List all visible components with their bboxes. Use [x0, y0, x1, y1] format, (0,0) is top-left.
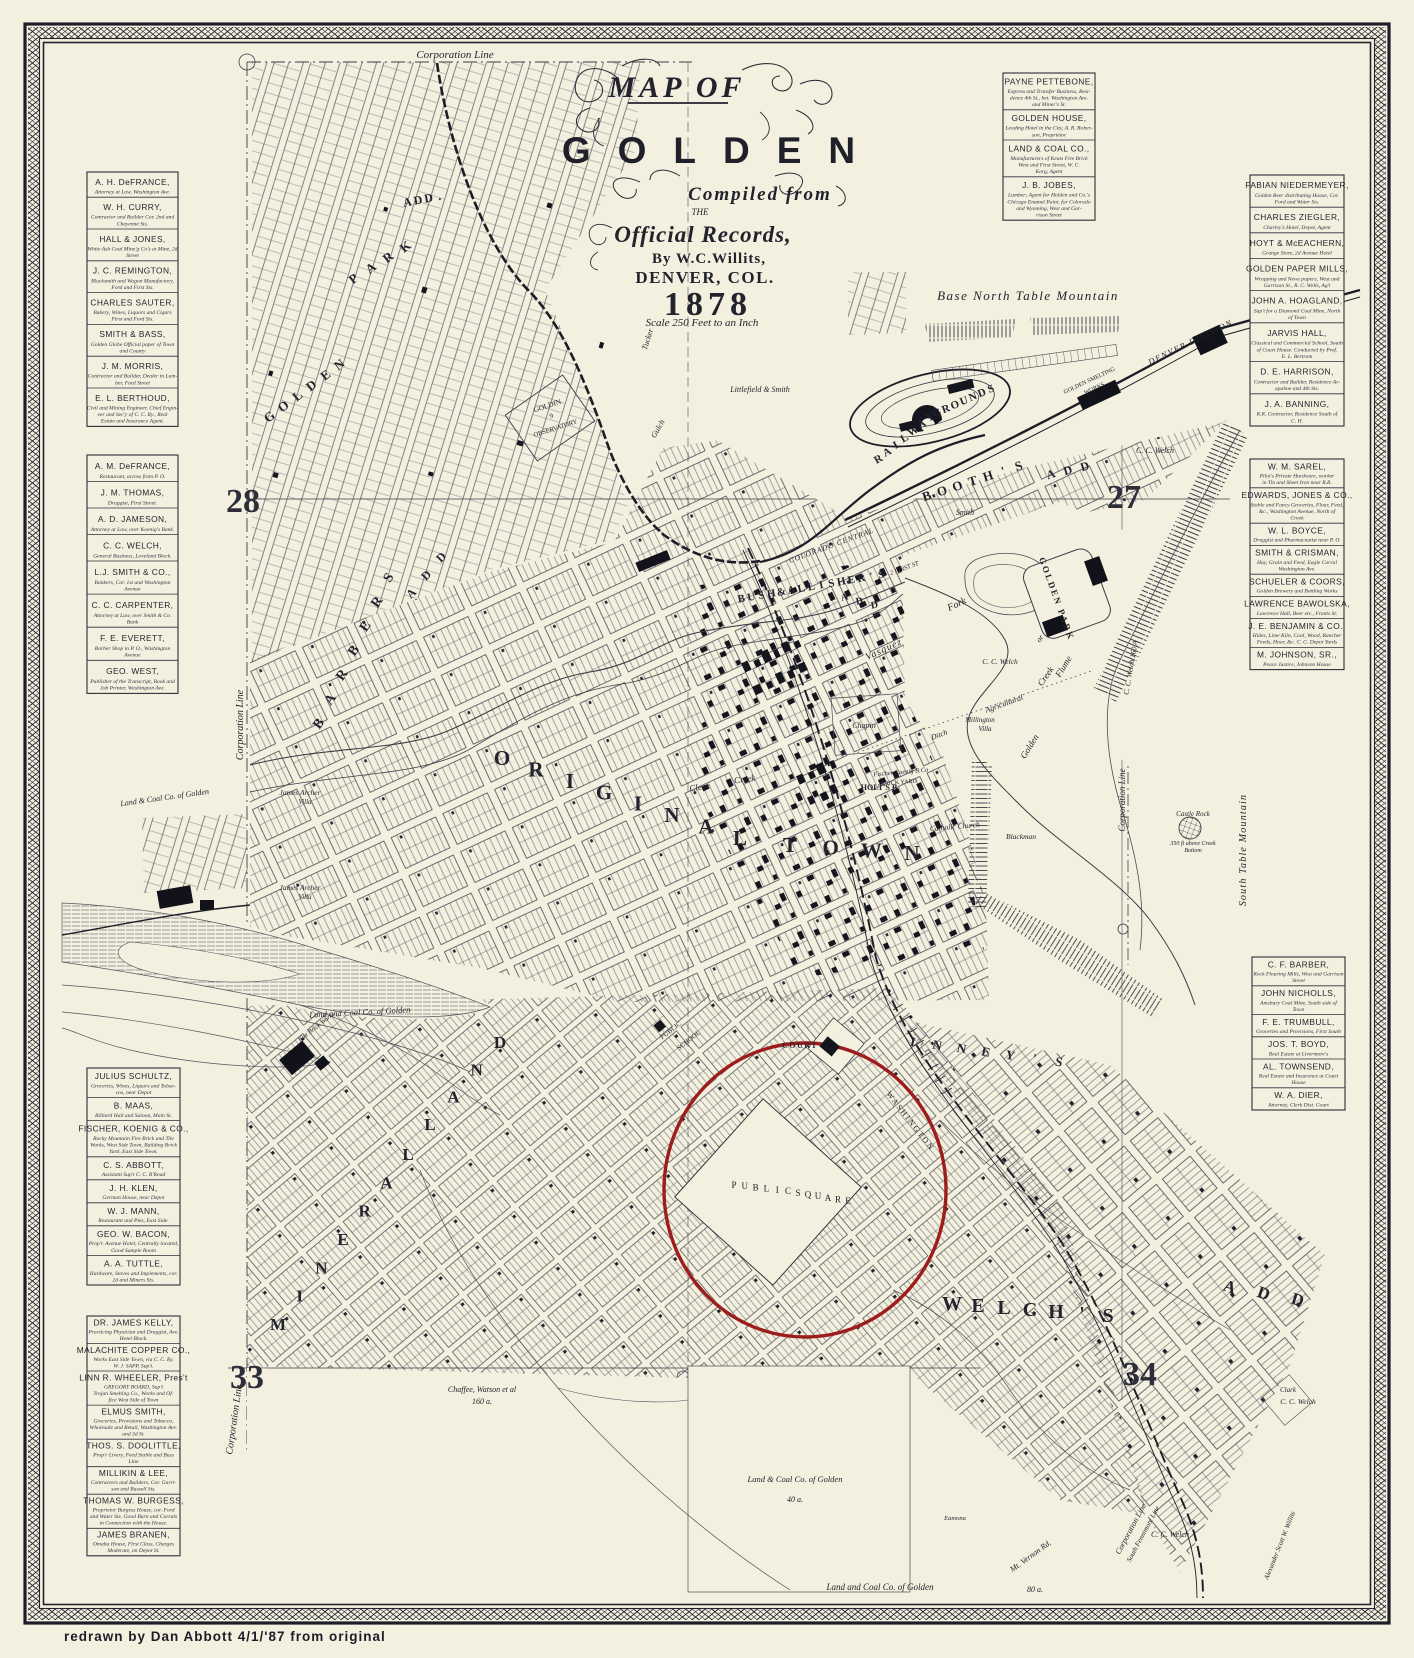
svg-text:Compiled from: Compiled from — [688, 184, 832, 205]
svg-text:L: L — [733, 826, 747, 850]
svg-text:Works, West Side Town, Buildin: Works, West Side Town, Building Brick — [90, 1143, 177, 1149]
svg-text:I: I — [634, 792, 642, 816]
svg-text:Hotel Block.: Hotel Block. — [119, 1336, 148, 1342]
svg-text:Avenue: Avenue — [123, 653, 141, 659]
svg-text:27: 27 — [1107, 479, 1141, 516]
svg-text:Real Estate and Insurance at C: Real Estate and Insurance at Court — [1258, 1074, 1339, 1080]
svg-text:Castle Rock: Castle Rock — [1176, 810, 1211, 818]
svg-text:Publisher of the Transcript, B: Publisher of the Transcript, Book and — [89, 678, 175, 685]
svg-text:Practicing Physician and Drugg: Practicing Physician and Druggist, Ave. — [87, 1329, 178, 1335]
svg-text:Manufacturers of Keats Fire Br: Manufacturers of Keats Fire Brick — [1009, 155, 1088, 162]
svg-text:Sup't for a Diamond Coal Mine,: Sup't for a Diamond Coal Mine, North — [1254, 308, 1341, 315]
svg-text:Prop'r. Avenue Hotel, Centrall: Prop'r. Avenue Hotel, Centrally located, — [88, 1241, 179, 1247]
svg-text:W. J. SAPP, Sup't.: W. J. SAPP, Sup't. — [114, 1363, 154, 1369]
svg-text:Good Sample Room: Good Sample Room — [111, 1248, 156, 1254]
svg-text:M: M — [270, 1315, 286, 1334]
svg-text:James Archer: James Archer — [279, 883, 320, 892]
svg-text:Proprietor Burgess House, cor.: Proprietor Burgess House, cor. Ford — [91, 1507, 174, 1513]
svg-text:Trojan Smelting Co., Works and: Trojan Smelting Co., Works and Of- — [93, 1390, 173, 1397]
svg-text:C. C. Welch: C. C. Welch — [982, 657, 1018, 666]
svg-text:West and First Street, W. C.: West and First Street, W. C. — [1018, 163, 1080, 169]
svg-text:L.J. SMITH & CO.,: L.J. SMITH & CO., — [94, 567, 170, 577]
svg-text:J. M. MORRIS,: J. M. MORRIS, — [102, 361, 164, 371]
svg-text:ELMUS SMITH,: ELMUS SMITH, — [101, 1406, 165, 1416]
svg-text:F. E. EVERETT,: F. E. EVERETT, — [100, 633, 165, 643]
svg-text:F. E. TRUMBULL,: F. E. TRUMBULL, — [1262, 1017, 1334, 1027]
svg-text:Villa: Villa — [298, 893, 312, 901]
svg-text:C: C — [1023, 1299, 1037, 1321]
svg-text:C: C — [785, 1186, 791, 1196]
svg-text:House: House — [1290, 1080, 1306, 1086]
svg-text:350 ft above Creek: 350 ft above Creek — [1169, 840, 1216, 847]
svg-text:son and Russell Sts.: son and Russell Sts. — [111, 1487, 155, 1493]
svg-text:Prop'r Livery, Feed Stable and: Prop'r Livery, Feed Stable and Buss — [92, 1452, 174, 1458]
svg-text:James Archer: James Archer — [279, 788, 320, 797]
svg-text:GEO. W. BACON,: GEO. W. BACON, — [97, 1229, 170, 1239]
svg-text:Golden Brewery and Bottling Wo: Golden Brewery and Bottling Works — [1257, 589, 1338, 595]
svg-text:Chicago Enamel Paint, for Colo: Chicago Enamel Paint, for Colorado — [1007, 198, 1090, 205]
svg-text:Korg, Agent: Korg, Agent — [1034, 169, 1062, 175]
svg-text:A. D. JAMESON,: A. D. JAMESON, — [98, 514, 167, 524]
svg-text:E. L. BERTHOUD,: E. L. BERTHOUD, — [95, 393, 170, 403]
svg-text:W. M. SAREL,: W. M. SAREL, — [1268, 461, 1326, 471]
svg-text:GOLDEN PAPER MILLS,: GOLDEN PAPER MILLS, — [1246, 263, 1348, 273]
svg-text:Attorney, Clerk Dist. Court: Attorney, Clerk Dist. Court — [1267, 1102, 1329, 1108]
svg-text:T: T — [783, 833, 797, 857]
svg-text:Rock Flouring Mills, West and: Rock Flouring Mills, West and Garrison — [1252, 972, 1343, 978]
svg-text:Corporation Line: Corporation Line — [235, 689, 246, 760]
svg-text:R.R. Contractor, Residence Sou: R.R. Contractor, Residence South of — [1256, 411, 1339, 418]
svg-text:Garrison St., R. C. Wells, Ag': Garrison St., R. C. Wells, Ag't — [1264, 283, 1331, 289]
svg-text:Attorney at Law, over Koenig's: Attorney at Law, over Koenig's Bank. — [90, 527, 175, 533]
svg-text:JOHN NICHOLLS,: JOHN NICHOLLS, — [1261, 988, 1336, 998]
svg-text:U: U — [742, 1181, 749, 1191]
svg-text:E: E — [971, 1295, 984, 1317]
svg-text:cos, near Depot: cos, near Depot — [116, 1090, 152, 1096]
svg-text:Assistant Sup't C. C. R'Road: Assistant Sup't C. C. R'Road — [101, 1172, 166, 1178]
svg-text:I: I — [776, 1185, 779, 1195]
svg-text:R: R — [528, 757, 544, 781]
svg-text:Stable and Fancy Groceries, Fl: Stable and Fancy Groceries, Flour, Feed, — [1251, 502, 1345, 508]
svg-text:in Tin and Sheet Iron near R.R: in Tin and Sheet Iron near R.R. — [1262, 480, 1332, 486]
svg-text:W: W — [861, 838, 882, 862]
svg-text:GEO. WEST,: GEO. WEST, — [106, 666, 159, 676]
svg-text:South Table Mountain: South Table Mountain — [1238, 794, 1249, 907]
svg-text:Peace Justice, Johnson House: Peace Justice, Johnson House — [1262, 662, 1331, 668]
svg-text:Q: Q — [805, 1190, 812, 1200]
svg-text:CHARLES ZIEGLER,: CHARLES ZIEGLER, — [1254, 212, 1340, 222]
svg-text:A: A — [825, 1193, 832, 1203]
svg-text:Smith: Smith — [956, 508, 974, 517]
svg-text:Street: Street — [1292, 978, 1305, 984]
svg-text:and County: and County — [120, 349, 146, 355]
svg-text:C. S. ABBOTT,: C. S. ABBOTT, — [103, 1160, 164, 1170]
svg-text:Groceries and Provisions, Firs: Groceries and Provisions, First South — [1256, 1029, 1341, 1035]
svg-text:Bakery, Wines, Liquors and Cig: Bakery, Wines, Liquors and Cigars — [93, 310, 171, 316]
svg-text:Rocky Mountain Fire Brick and: Rocky Mountain Fire Brick and Tile — [92, 1136, 174, 1142]
svg-text:Charley's Hotel, Depot, Agent: Charley's Hotel, Depot, Agent — [1263, 225, 1331, 231]
svg-text:Street: Street — [126, 253, 139, 259]
svg-text:160 a.: 160 a. — [472, 1397, 492, 1406]
svg-text:ber, Ford Street: ber, Ford Street — [115, 380, 150, 386]
svg-text:A. M. DeFRANCE,: A. M. DeFRANCE, — [95, 461, 170, 471]
svg-text:Omaha House, First Class, Char: Omaha House, First Class, Charges — [93, 1542, 174, 1548]
svg-text:Scale 250 Feet to an Inch: Scale 250 Feet to an Inch — [646, 317, 759, 329]
svg-text:THOS. S. DOOLITTLE,: THOS. S. DOOLITTLE, — [86, 1441, 181, 1451]
svg-text:HALL & JONES,: HALL & JONES, — [99, 234, 165, 244]
svg-text:Official Records,: Official Records, — [614, 222, 792, 247]
svg-text:of Town: of Town — [1288, 314, 1306, 321]
svg-text:O: O — [494, 746, 510, 770]
svg-text:White Ash Coal Mine'g Co's at: White Ash Coal Mine'g Co's at Mine, 2d — [87, 247, 177, 253]
svg-text:and Miner's St.: and Miner's St. — [1032, 102, 1066, 108]
svg-text:Billiard Hall and Saloon, Main: Billiard Hall and Saloon, Main St. — [95, 1113, 172, 1119]
svg-text:C. H.: C. H. — [1291, 418, 1303, 424]
svg-text:S: S — [795, 1188, 800, 1198]
svg-text:MAP OF: MAP OF — [607, 71, 745, 104]
svg-text:Contractor and Builder, Reside: Contractor and Builder, Residence Ar- — [1254, 380, 1340, 386]
svg-text:Eamona: Eamona — [943, 1515, 966, 1522]
svg-text:COURT: COURT — [782, 1041, 818, 1050]
svg-text:Base North Table Mountain: Base North Table Mountain — [937, 288, 1119, 303]
svg-text:A. H. DeFRANCE,: A. H. DeFRANCE, — [95, 177, 169, 187]
svg-text:Classical and Commercial Schoo: Classical and Commercial School, South — [1251, 341, 1343, 347]
svg-text:Moderate, on Depot St.: Moderate, on Depot St. — [106, 1548, 159, 1554]
svg-text:Yard, East Side Town.: Yard, East Side Town. — [109, 1149, 158, 1155]
svg-text:By W.C.Willits,: By W.C.Willits, — [652, 251, 766, 267]
svg-text:of Court House. Conducted by P: of Court House. Conducted by Prof. — [1257, 346, 1338, 353]
svg-text:Line: Line — [128, 1459, 139, 1465]
svg-text:Villa: Villa — [978, 725, 992, 733]
svg-text:LAND & COAL CO.,: LAND & COAL CO., — [1008, 143, 1089, 153]
svg-text:Leading Hotel in the City, A.: Leading Hotel in the City, A. R. Rober- — [1004, 126, 1092, 132]
svg-text:J. A. BANNING,: J. A. BANNING, — [1265, 399, 1330, 409]
svg-text:GOLDEN HOUSE,: GOLDEN HOUSE, — [1011, 113, 1086, 123]
svg-text:MALACHITE COPPER CO.,: MALACHITE COPPER CO., — [77, 1345, 191, 1355]
svg-text:J. E. BENJAMIN & CO.,: J. E. BENJAMIN & CO., — [1248, 621, 1345, 631]
svg-text:JOHN A. HOAGLAND,: JOHN A. HOAGLAND, — [1251, 296, 1342, 306]
svg-text:C. C. Welch: C. C. Welch — [1280, 1397, 1316, 1406]
svg-text:Washington Ave.: Washington Ave. — [1279, 567, 1316, 573]
svg-text:and Water Sts. Good Barn and C: and Water Sts. Good Barn and Corrals — [90, 1514, 177, 1520]
svg-text:THE: THE — [691, 207, 709, 217]
svg-text:E: E — [337, 1230, 348, 1249]
svg-text:Cheyenne Sts.: Cheyenne Sts. — [117, 221, 148, 227]
svg-text:Contractors and Builders, Cor.: Contractors and Builders, Cor. Garri- — [91, 1480, 177, 1486]
svg-text:FABIAN NIEDERMEYER,: FABIAN NIEDERMEYER, — [1245, 180, 1348, 190]
svg-text:eer and Sec'y of C. C. Ry., Re: eer and Sec'y of C. C. Ry., Real — [98, 411, 168, 418]
svg-text:HOYT & McEACHERN,: HOYT & McEACHERN, — [1250, 238, 1345, 248]
svg-text:DENVER, COL.: DENVER, COL. — [635, 268, 774, 287]
svg-text:in Connection with the House.: in Connection with the House. — [100, 1521, 168, 1527]
svg-text:N: N — [315, 1258, 328, 1277]
svg-text:FISCHER, KOENIG & CO.,: FISCHER, KOENIG & CO., — [78, 1124, 188, 1134]
svg-text:Grange Store, 2d Avenue Hotel: Grange Store, 2d Avenue Hotel — [1262, 251, 1332, 257]
svg-text:Millington: Millington — [964, 716, 995, 724]
svg-text:HOLT'S B.: HOLT'S B. — [861, 783, 899, 792]
svg-text:JAMES BRANEN,: JAMES BRANEN, — [97, 1530, 170, 1540]
svg-text:Bank: Bank — [127, 620, 139, 626]
svg-text:Express and Transfer Business,: Express and Transfer Business, Resi- — [1007, 88, 1091, 95]
svg-text:G: G — [596, 780, 612, 804]
svg-text:General Business, Loveland Blo: General Business, Loveland Block. — [93, 553, 171, 559]
svg-text:J. B. JOBES,: J. B. JOBES, — [1022, 180, 1076, 190]
svg-text:40 a.: 40 a. — [787, 1495, 803, 1504]
svg-text:and Wyoming, West and Gar-: and Wyoming, West and Gar- — [1016, 206, 1082, 212]
svg-text:JARVIS HALL,: JARVIS HALL, — [1267, 328, 1327, 338]
svg-text:SCHUELER & COORS,: SCHUELER & COORS, — [1249, 577, 1345, 587]
svg-text:Feeds, Hoor, &c. C. C. Depot Y: Feeds, Hoor, &c. C. C. Depot Yards — [1256, 640, 1337, 646]
svg-text:Contractor and Builder, Dealer: Contractor and Builder, Dealer in Lum- — [88, 374, 178, 380]
svg-text:L: L — [402, 1145, 413, 1164]
svg-text:Estate and Insurance Agent.: Estate and Insurance Agent. — [100, 419, 164, 425]
svg-text:THOMAS W. BURGESS,: THOMAS W. BURGESS, — [83, 1496, 184, 1506]
svg-text:Avenue: Avenue — [123, 586, 141, 592]
svg-text:Chapin: Chapin — [852, 721, 876, 730]
svg-text:First and Ford Sts.: First and Ford Sts. — [110, 317, 153, 323]
svg-text:Druggist, First Street.: Druggist, First Street. — [107, 500, 157, 506]
svg-text:Chaffee, Watson et al: Chaffee, Watson et al — [448, 1385, 517, 1394]
svg-text:Blackman: Blackman — [1006, 832, 1036, 841]
svg-text:L: L — [764, 1184, 770, 1194]
svg-text:Pilot's Private Hardware, work: Pilot's Private Hardware, worker — [1259, 474, 1336, 480]
svg-text:LINN R. WHEELER, Pres't: LINN R. WHEELER, Pres't — [79, 1372, 188, 1382]
svg-text:P: P — [731, 1180, 736, 1190]
svg-text:Barber Shop in P. O., Washingt: Barber Shop in P. O., Washington — [95, 646, 171, 652]
svg-text:JOS. T. BOYD,: JOS. T. BOYD, — [1268, 1039, 1329, 1049]
svg-text:Contractor and Builder Cor. 2n: Contractor and Builder Cor. 2nd and — [91, 215, 174, 221]
svg-text:Corporation Line: Corporation Line — [416, 49, 493, 61]
svg-text:E: E — [845, 1196, 851, 1206]
svg-text:rison Street: rison Street — [1036, 213, 1062, 219]
svg-text:W. L. BOYCE,: W. L. BOYCE, — [1268, 526, 1326, 536]
svg-text:&c., Washington Avenue, North: &c., Washington Avenue, North of — [1259, 508, 1337, 515]
svg-text:N: N — [904, 841, 919, 865]
svg-text:Land and Coal Co. of Gold: Land and Coal Co. of Golden — [825, 1582, 934, 1592]
svg-text:Wholesale and Retail, Washingt: Wholesale and Retail, Washington Ave. — [90, 1425, 178, 1431]
svg-text:apahoe and 4th Sts.: apahoe and 4th Sts. — [1275, 386, 1319, 392]
svg-text:D: D — [494, 1033, 506, 1052]
svg-text:U: U — [815, 1191, 822, 1201]
svg-text:L: L — [424, 1115, 435, 1134]
svg-text:J. C. REMINGTON,: J. C. REMINGTON, — [93, 266, 172, 276]
svg-text:S: S — [1102, 1305, 1113, 1327]
svg-text:Hay, Grain and Feed, Eagle Cor: Hay, Grain and Feed, Eagle Corral — [1256, 560, 1337, 566]
svg-text:Land & Coal Co. of Golden: Land & Coal Co. of Golden — [747, 1474, 843, 1484]
svg-text:German House, near Depot: German House, near Depot — [102, 1195, 165, 1201]
svg-text:Lumber; Agent for Holden and C: Lumber; Agent for Holden and Co.'s — [1007, 192, 1090, 199]
svg-text:and 3d St.: and 3d St. — [122, 1432, 145, 1438]
svg-text:Hardware, Stoves and Implement: Hardware, Stoves and Implements, cor. — [89, 1271, 178, 1277]
svg-text:C. C. Welch: C. C. Welch — [1151, 1530, 1189, 1539]
svg-text:Ford and Water Sts.: Ford and Water Sts. — [1274, 200, 1320, 206]
svg-text:CHARLES SAUTER,: CHARLES SAUTER, — [90, 297, 174, 307]
svg-text:Amsbury Coal Mine, South side: Amsbury Coal Mine, South side of — [1259, 999, 1338, 1006]
svg-text:N: N — [471, 1060, 484, 1079]
svg-text:B. MAAS,: B. MAAS, — [114, 1101, 154, 1111]
svg-text:28: 28 — [226, 483, 260, 520]
svg-text:A: A — [698, 815, 714, 839]
svg-text:J. M. THOMAS,: J. M. THOMAS, — [101, 487, 165, 497]
svg-text:E. L. Bertram: E. L. Bertram — [1281, 354, 1313, 360]
svg-text:B: B — [753, 1182, 759, 1192]
svg-text:I: I — [566, 769, 574, 793]
svg-text:Creek: Creek — [1290, 516, 1304, 522]
svg-text:JULIUS SCHULTZ,: JULIUS SCHULTZ, — [95, 1071, 173, 1081]
svg-text:H: H — [1048, 1301, 1064, 1323]
svg-text:MILLIKIN & LEE,: MILLIKIN & LEE, — [99, 1468, 168, 1478]
svg-text:Groceries, Provisions and Toba: Groceries, Provisions and Tobacco, — [93, 1418, 174, 1424]
svg-text:Golden Beer distributing House: Golden Beer distributing House, Cor. — [1255, 193, 1339, 199]
svg-text:A: A — [447, 1088, 460, 1107]
svg-text:Lawrence Hall, Beer etc., Fron: Lawrence Hall, Beer etc., Fronts St. — [1256, 611, 1338, 617]
svg-text:C. F. BARBER,: C. F. BARBER, — [1268, 959, 1330, 969]
svg-text:Druggist and Pharmaceutist nea: Druggist and Pharmaceutist near P. O. — [1252, 538, 1341, 544]
svg-text:Job Printer, Washington Ave.: Job Printer, Washington Ave. — [100, 686, 165, 692]
svg-text:Blacksmith and Wagon Manufacto: Blacksmith and Wagon Manufactory, — [91, 277, 174, 284]
svg-text:Bottom: Bottom — [1184, 848, 1202, 854]
svg-text:fice West Side of Town: fice West Side of Town — [109, 1396, 159, 1403]
svg-text:A: A — [380, 1173, 393, 1192]
svg-text:M. JOHNSON, SR.,: M. JOHNSON, SR., — [1257, 650, 1337, 660]
svg-text:Works East Side Town, via C. C: Works East Side Town, via C. C. Ry. — [93, 1357, 173, 1363]
svg-text:Wrapping and News papers, West: Wrapping and News papers, West and — [1255, 276, 1340, 282]
svg-text:W. J. MANN,: W. J. MANN, — [107, 1206, 159, 1216]
svg-text:I: I — [296, 1287, 303, 1306]
svg-text:Bankers, Cor. 1st and Washingt: Bankers, Cor. 1st and Washington — [95, 580, 171, 586]
svg-text:Real Estate at Livermore's: Real Estate at Livermore's — [1268, 1051, 1328, 1057]
svg-text:D. E. HARRISON,: D. E. HARRISON, — [1260, 367, 1333, 377]
svg-text:dence 4th St., bet. Washington: dence 4th St., bet. Washington Ave. — [1010, 96, 1088, 102]
svg-text:80 a.: 80 a. — [1027, 1585, 1043, 1594]
svg-text:C. C. Welch: C. C. Welch — [1136, 446, 1174, 455]
svg-text:SMITH & BASS,: SMITH & BASS, — [99, 329, 165, 339]
svg-text:Littlefield & Smith: Littlefield & Smith — [729, 385, 790, 394]
svg-text:Restaurant and Pies, East Side: Restaurant and Pies, East Side. — [97, 1218, 169, 1224]
svg-text:': ' — [1079, 1303, 1085, 1325]
svg-text:DR. JAMES KELLY,: DR. JAMES KELLY, — [93, 1317, 173, 1327]
svg-text:W: W — [942, 1293, 962, 1315]
svg-text:2d and Miners Sts.: 2d and Miners Sts. — [113, 1277, 155, 1283]
svg-text:C. C. WELCH,: C. C. WELCH, — [103, 540, 162, 550]
svg-text:Restaurant, across from P. O.: Restaurant, across from P. O. — [99, 473, 166, 480]
svg-text:LAWRENCE BAWOLSKA,: LAWRENCE BAWOLSKA, — [1244, 599, 1350, 609]
svg-text:son, Proprietor: son, Proprietor — [1032, 132, 1067, 138]
svg-text:R: R — [359, 1202, 372, 1221]
svg-text:EDWARDS, JONES & CO.,: EDWARDS, JONES & CO., — [1242, 490, 1353, 500]
svg-text:PAYNE PETTEBONE,: PAYNE PETTEBONE, — [1005, 76, 1094, 86]
svg-text:R: R — [835, 1194, 841, 1204]
svg-text:Attorney at Law, over Smith &: Attorney at Law, over Smith & Co. — [93, 613, 172, 619]
svg-text:redrawn by Dan Abbott 4/1/: redrawn by Dan Abbott 4/1/'87 from origi… — [64, 1629, 386, 1644]
svg-text:33: 33 — [230, 1359, 264, 1396]
svg-text:Ford and First Sts.: Ford and First Sts. — [110, 285, 153, 291]
svg-text:GREGORY BOARD, Sup't: GREGORY BOARD, Sup't — [104, 1384, 163, 1390]
svg-text:W. A. DIER,: W. A. DIER, — [1274, 1090, 1323, 1100]
svg-text:AL. TOWNSEND,: AL. TOWNSEND, — [1263, 1061, 1334, 1071]
svg-text:Civil and Mining Engineer, Chi: Civil and Mining Engineer, Chief Engin- — [87, 405, 178, 412]
svg-text:J. H. KLEN,: J. H. KLEN, — [109, 1183, 157, 1193]
svg-text:Attorney at Law, Washington Av: Attorney at Law, Washington Ave. — [94, 190, 170, 196]
svg-text:A. A. TUTTLE,: A. A. TUTTLE, — [104, 1258, 163, 1268]
svg-text:Hides, Lime Kiln, Coal, Wood,: Hides, Lime Kiln, Coal, Wood, Rancher — [1252, 633, 1343, 639]
svg-text:O: O — [822, 836, 838, 860]
svg-text:N: N — [664, 803, 679, 827]
svg-text:W. H. CURRY,: W. H. CURRY, — [103, 202, 161, 212]
svg-text:SMITH & CRISMAN,: SMITH & CRISMAN, — [1255, 548, 1339, 558]
svg-text:GOLDEN: GOLDEN — [562, 130, 882, 171]
svg-text:Clark: Clark — [1280, 1386, 1297, 1394]
svg-text:C. C. CARPENTER,: C. C. CARPENTER, — [92, 600, 174, 610]
svg-text:34: 34 — [1123, 1356, 1157, 1393]
svg-text:Town: Town — [1293, 1007, 1305, 1013]
svg-text:Golden Globe Official paper of: Golden Globe Official paper of Town — [91, 341, 175, 348]
svg-text:Groceries, Wines, Liquors and: Groceries, Wines, Liquors and Tobac- — [91, 1083, 176, 1089]
svg-text:Villa: Villa — [298, 798, 312, 806]
svg-text:L: L — [997, 1297, 1010, 1319]
